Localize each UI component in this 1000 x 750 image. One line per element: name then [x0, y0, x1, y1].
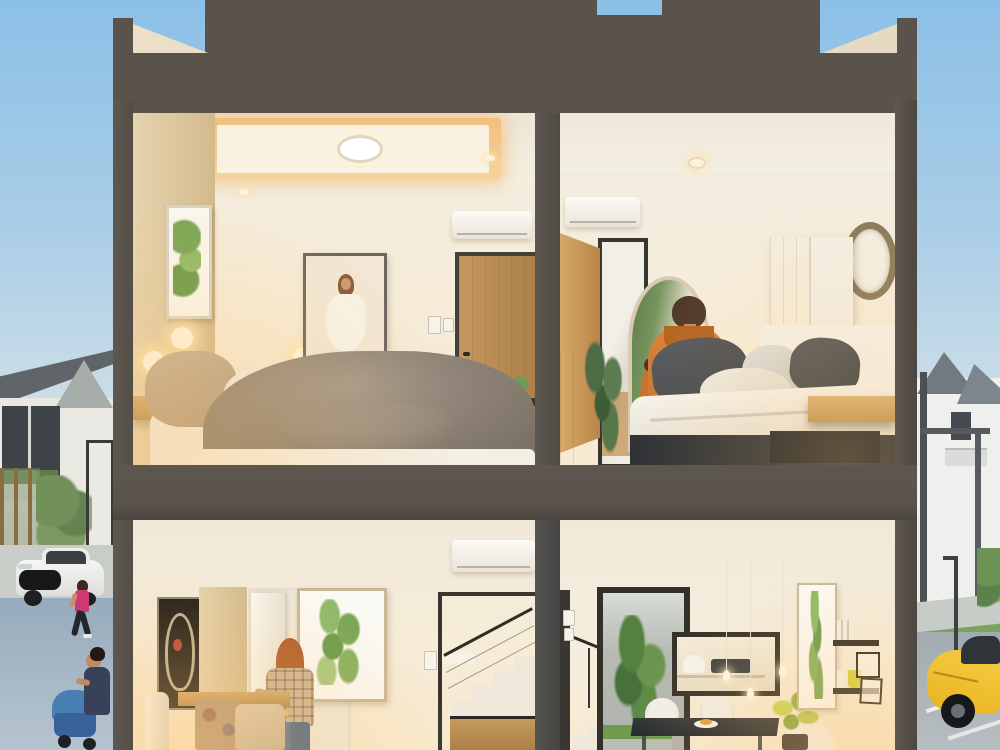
porch-post — [920, 372, 927, 627]
leaf-art-tall-frame — [797, 583, 837, 710]
yellow-car — [927, 636, 1000, 731]
staircase-enclosure — [438, 588, 535, 750]
small-frame — [856, 652, 880, 678]
stroller-wheel-2 — [83, 738, 96, 750]
sheet-edge — [193, 449, 535, 465]
palm-greenery — [977, 548, 1000, 618]
light-switch — [424, 651, 437, 670]
jogger-leg-right — [79, 611, 92, 637]
light-switch — [443, 318, 454, 332]
center-column-upper — [535, 113, 560, 465]
mid-floor-slab — [113, 465, 917, 520]
table-leg — [642, 736, 646, 750]
plant-pot — [782, 734, 808, 750]
white-car-windshield — [46, 551, 86, 564]
street-lamp-arm — [943, 556, 958, 560]
white-stairs — [452, 650, 535, 716]
pendant-cord — [726, 560, 727, 672]
parapet-top-notch — [597, 0, 662, 15]
bed-frame-shadow — [770, 431, 880, 463]
plant-art-leaves — [173, 214, 201, 306]
stair-frame-top — [438, 592, 535, 596]
portrait-face — [341, 278, 351, 290]
white-bottle — [837, 670, 845, 688]
mother-hair — [90, 647, 105, 661]
round-ceiling-lamp — [337, 135, 383, 163]
downlight-icon — [239, 189, 249, 195]
pendant-cord — [782, 560, 783, 668]
yellow-car-windshield — [961, 636, 1000, 664]
wall-shelf — [833, 640, 879, 646]
jogger-shoe — [83, 634, 92, 638]
white-car-wheel-front — [24, 590, 42, 606]
kitchen-counter-line — [677, 675, 765, 678]
parapet-main — [205, 0, 820, 115]
under-stair-cabinet — [450, 716, 535, 750]
left-exterior-wall — [113, 100, 133, 750]
garden-path — [603, 739, 672, 750]
door-handle-icon — [463, 352, 470, 356]
pendant-bulb-icon — [747, 688, 754, 699]
beige-cushion — [235, 704, 285, 750]
plant-art-frame — [166, 205, 212, 319]
leaf-art-leaves — [803, 591, 829, 699]
white-car-grille — [19, 570, 61, 590]
light-switch — [563, 610, 575, 626]
kitchen-kettle — [683, 655, 705, 673]
center-column-lower — [535, 520, 560, 750]
portrait-dress — [326, 294, 366, 352]
exterior-right — [917, 0, 1000, 750]
air-conditioner — [565, 197, 640, 227]
recessed-downlight — [688, 157, 706, 169]
room-living — [133, 520, 535, 750]
kitchen-sink-items — [711, 659, 751, 673]
white-car-headlight — [18, 564, 32, 569]
pendant-bulb-icon — [779, 666, 786, 677]
room-second-bedroom — [560, 113, 895, 465]
parapet-right-sunlit-face — [822, 20, 897, 53]
small-frame — [859, 677, 882, 704]
exterior-left — [0, 0, 113, 750]
stair-baluster — [588, 648, 590, 708]
food-items — [700, 719, 712, 725]
pendant-bulb-icon — [723, 670, 730, 681]
room-dining — [560, 520, 895, 750]
mother-arm — [76, 678, 91, 686]
potted-plant — [580, 338, 630, 456]
stroller-body — [54, 713, 96, 737]
stroller-wheel — [58, 735, 71, 748]
light-switch — [428, 316, 441, 334]
shelf-books — [837, 620, 853, 640]
right-exterior-wall — [895, 100, 917, 750]
render-scene — [0, 0, 1000, 750]
light-switch — [564, 628, 574, 641]
abstract-art-swirl — [165, 613, 195, 691]
ceiling — [560, 113, 895, 171]
downlight-icon — [485, 155, 495, 161]
stroller-woman — [50, 645, 113, 750]
pendant-cord — [750, 560, 751, 690]
room-master-bedroom — [133, 113, 535, 465]
abstract-art-dot — [173, 639, 182, 651]
parapet-left-sunlit-face — [133, 20, 208, 53]
floating-nightstand — [808, 396, 895, 422]
right-house-window — [951, 412, 971, 440]
mother-torso — [84, 667, 110, 715]
air-conditioner — [452, 211, 532, 239]
yellow-car-rim — [951, 704, 965, 718]
white-vase — [145, 692, 169, 750]
wall-sconce-glow — [171, 327, 193, 349]
table-leg — [758, 736, 762, 750]
stair-frame-post — [438, 592, 442, 750]
jogging-woman — [68, 580, 96, 650]
air-conditioner — [452, 540, 535, 572]
